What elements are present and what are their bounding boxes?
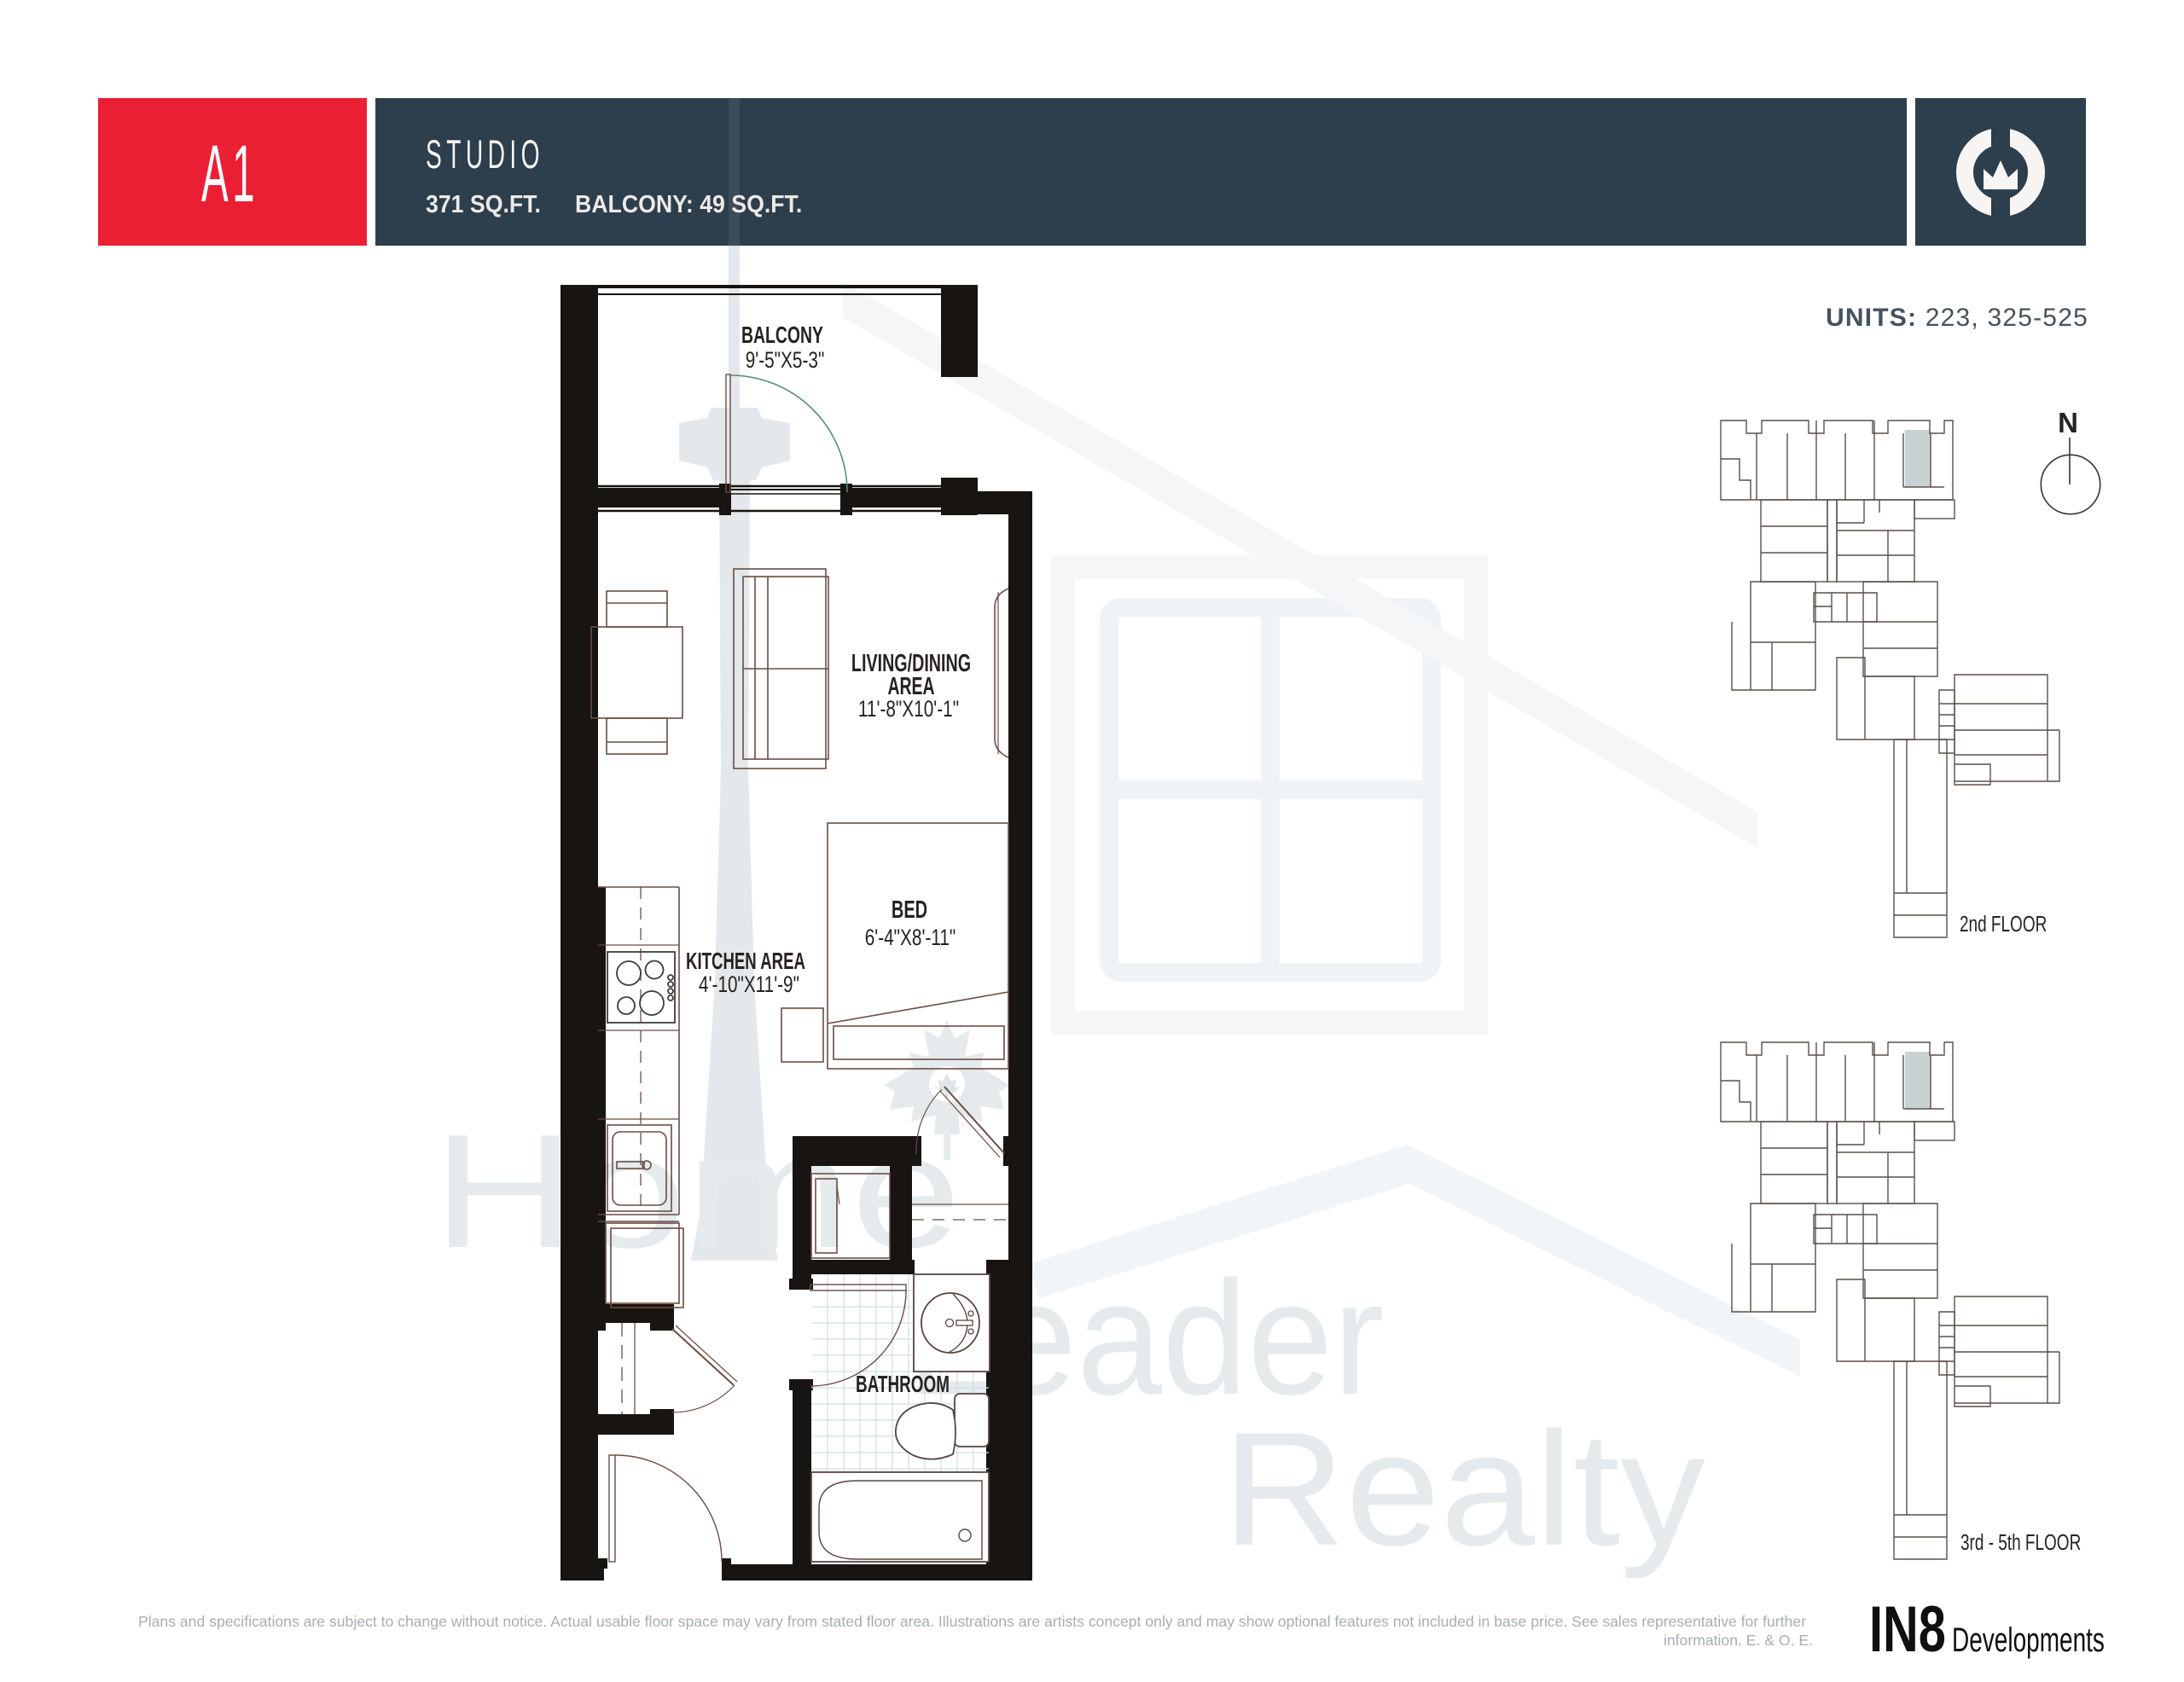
svg-text:Home: Home [433,1100,961,1281]
svg-text:KITCHEN AREA: KITCHEN AREA [686,948,805,975]
svg-text:IN8: IN8 [1869,1593,1946,1665]
svg-text:information. E. & O. E.: information. E. & O. E. [1664,1632,1813,1649]
svg-text:Developments: Developments [1952,1621,2105,1659]
svg-text:3rd - 5th FLOOR: 3rd - 5th FLOOR [1960,1529,2081,1555]
svg-text:4'-10"X11'-9": 4'-10"X11'-9" [699,971,799,997]
svg-text:9'-5"X5-3": 9'-5"X5-3" [746,347,825,373]
svg-text:STUDIO: STUDIO [426,133,544,177]
svg-text:BATHROOM: BATHROOM [856,1371,950,1398]
svg-text:11'-8"X10'-1": 11'-8"X10'-1" [858,696,959,722]
svg-text:6'-4"X8'-11": 6'-4"X8'-11" [865,925,956,950]
svg-text:Realty: Realty [1223,1399,1706,1580]
svg-text:2nd FLOOR: 2nd FLOOR [1960,911,2047,937]
svg-text:BED: BED [892,896,927,924]
svg-text:Plans and specifications are s: Plans and specifications are subject to … [138,1613,1806,1630]
svg-text:A1: A1 [201,128,258,218]
svg-text:BALCONY: 49 SQ.FT.: BALCONY: 49 SQ.FT. [575,190,802,217]
svg-text:371 SQ.FT.: 371 SQ.FT. [426,190,541,217]
svg-text:UNITS: 223, 325-525: UNITS: 223, 325-525 [1826,304,2088,332]
svg-text:BALCONY: BALCONY [741,322,823,349]
svg-text:N: N [2058,407,2078,438]
